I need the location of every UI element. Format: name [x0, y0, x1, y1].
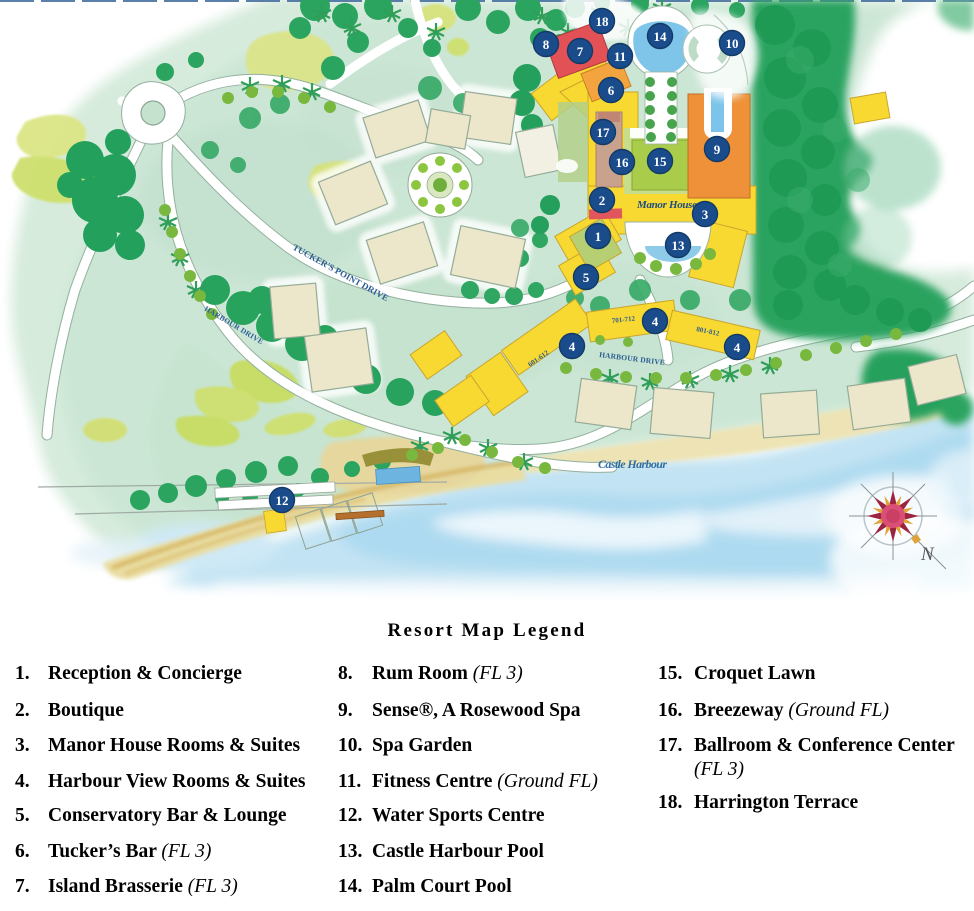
- svg-text:17: 17: [597, 125, 611, 140]
- svg-text:4: 4: [734, 340, 741, 355]
- svg-text:14: 14: [654, 29, 668, 44]
- svg-text:8: 8: [543, 37, 550, 52]
- svg-text:16: 16: [616, 155, 630, 170]
- svg-text:5: 5: [583, 270, 590, 285]
- svg-text:9: 9: [714, 142, 721, 157]
- svg-text:10: 10: [726, 36, 739, 51]
- svg-text:N: N: [920, 544, 935, 565]
- svg-text:13: 13: [672, 238, 686, 253]
- svg-text:3: 3: [702, 207, 709, 222]
- svg-text:4: 4: [569, 339, 576, 354]
- svg-text:7: 7: [577, 44, 584, 59]
- svg-text:4: 4: [652, 314, 659, 329]
- svg-text:Manor House: Manor House: [636, 199, 697, 211]
- svg-text:Castle Harbour: Castle Harbour: [598, 457, 667, 471]
- svg-text:1: 1: [595, 229, 602, 244]
- svg-text:12: 12: [276, 493, 289, 508]
- svg-text:11: 11: [614, 49, 626, 64]
- svg-text:6: 6: [608, 83, 615, 98]
- svg-text:18: 18: [596, 14, 610, 29]
- svg-text:2: 2: [599, 193, 606, 208]
- svg-text:15: 15: [654, 154, 668, 169]
